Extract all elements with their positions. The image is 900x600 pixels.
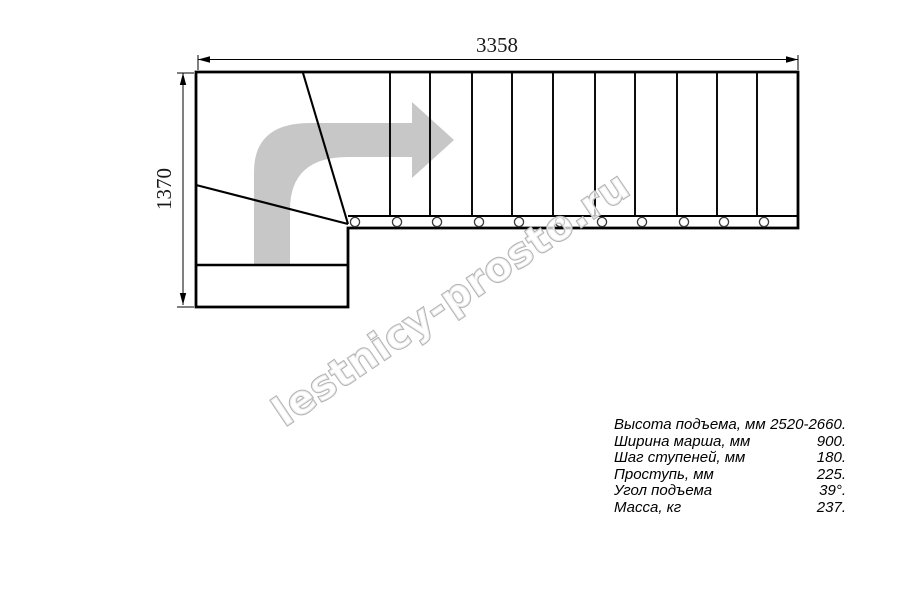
dimension-width-label: 3358 xyxy=(476,33,518,57)
spec-label: Шаг ступеней, мм xyxy=(614,450,745,467)
spec-value: 180. xyxy=(817,450,846,467)
spec-row-angle: Угол подъема 39°. xyxy=(614,483,846,500)
spec-value: 2520-2660. xyxy=(770,417,846,434)
spec-label: Высота подъема, мм xyxy=(614,417,766,434)
dimension-height-label: 1370 xyxy=(152,168,176,210)
spec-row-flight-width: Ширина марша, мм 900. xyxy=(614,434,846,451)
spec-row-height: Высота подъема, мм 2520-2660. xyxy=(614,417,846,434)
spec-row-tread: Проступь, мм 225. xyxy=(614,467,846,484)
spec-value: 237. xyxy=(817,500,846,517)
spec-table: Высота подъема, мм 2520-2660. Ширина мар… xyxy=(614,417,846,517)
spec-value: 900. xyxy=(817,434,846,451)
dimension-width xyxy=(198,55,798,70)
spec-value: 225. xyxy=(817,467,846,484)
dimension-height xyxy=(177,73,194,307)
spec-label: Ширина марша, мм xyxy=(614,434,750,451)
watermark-text: lestnicy-prosto.ru xyxy=(264,163,638,436)
spec-value: 39°. xyxy=(819,483,846,500)
spec-label: Проступь, мм xyxy=(614,467,714,484)
spec-row-step: Шаг ступеней, мм 180. xyxy=(614,450,846,467)
spec-label: Угол подъема xyxy=(614,483,712,500)
stair-drawing-page: 3358 1370 lestnicy-prosto.ru Высота подъ… xyxy=(0,0,900,600)
spec-row-mass: Масса, кг 237. xyxy=(614,500,846,517)
direction-arrow-icon xyxy=(254,102,454,265)
spec-label: Масса, кг xyxy=(614,500,681,517)
